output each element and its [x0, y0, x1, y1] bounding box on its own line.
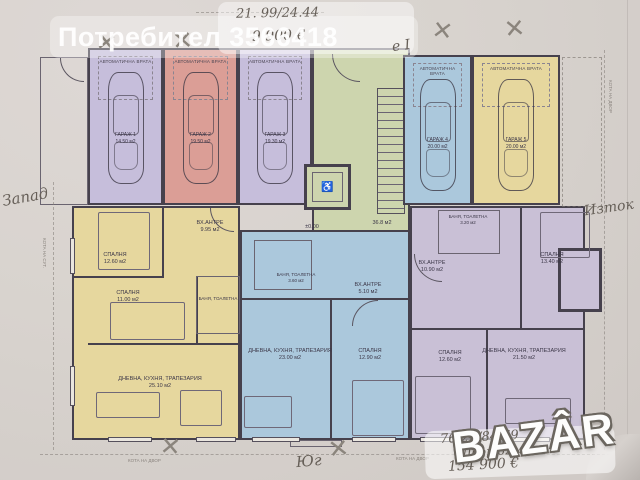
- bed: [352, 380, 404, 436]
- garage-5: АВТОМАТИЧНА ВРАТА ГАРАЖ 520.00 м2: [472, 55, 560, 205]
- wall: [162, 208, 164, 278]
- garage-2: АВТОМАТИЧНА ВРАТА ГАРАЖ 219.50 м2: [163, 48, 238, 205]
- garage-door-label: АВТОМАТИЧНА ВРАТА: [414, 66, 461, 76]
- room-label: СПАЛНЯ12.90 м2: [330, 348, 410, 362]
- room-label: ВХ.АНТРЕ5.10 м2: [328, 282, 408, 296]
- floorplan-photo: АВТОМАТИЧНА ВРАТА ГАРАЖ 114.50 м2 АВТОМА…: [0, 0, 640, 480]
- window: [70, 366, 75, 406]
- garage-door-label: АВТОМАТИЧНА ВРАТА: [483, 66, 549, 71]
- room-label: БАНЯ, ТОАЛЕТНА: [190, 296, 246, 302]
- garage-4: АВТОМАТИЧНА ВРАТА ГАРАЖ 420.00 м2: [403, 55, 472, 205]
- x-mark: ✕: [430, 15, 455, 47]
- room-label: СПАЛНЯ13.40 м2: [512, 252, 592, 266]
- staircase: [377, 88, 405, 214]
- handwritten-entrance-mark: е I: [391, 37, 411, 55]
- room-label: БАНЯ, ТОАЛЕТНА3.60 м2: [256, 272, 336, 283]
- survey-label: КОТА НА ДВОР: [128, 458, 161, 463]
- garage-door-label: АВТОМАТИЧНА ВРАТА: [249, 59, 301, 64]
- handwritten-top-dims: 21. 99/24.44: [236, 5, 319, 21]
- dashed-line-right: [604, 50, 605, 450]
- core-entry-door-arc: [332, 54, 360, 82]
- garage-label: ГАРАЖ 219.50 м2: [165, 132, 236, 145]
- dining-table: [180, 390, 222, 426]
- sofa: [96, 392, 160, 418]
- handwritten-south: Юг: [295, 451, 322, 471]
- garage-door-label: АВТОМАТИЧНА ВРАТА: [174, 59, 227, 64]
- room-label: ДНЕВНА, КУХНЯ, ТРАПЕЗАРИЯ21.50 м2: [464, 348, 584, 362]
- survey-label: КОТА НА ДВОР: [396, 456, 429, 461]
- dining-table: [244, 396, 292, 428]
- car-icon: [108, 72, 144, 184]
- car-icon: [498, 79, 534, 191]
- room-label: СПАЛНЯ11.00 м2: [88, 290, 168, 304]
- garage-door-label: АВТОМАТИЧНА ВРАТА: [99, 59, 152, 64]
- room-label: ВХ.АНТРЕ9.95 м2: [170, 220, 250, 234]
- garage-label: ГАРАЖ 319.30 м2: [240, 132, 310, 145]
- garage-label: ГАРАЖ 114.50 м2: [90, 132, 161, 145]
- handwritten-west: Запад: [1, 184, 50, 210]
- window: [252, 437, 300, 442]
- x-mark: ✕: [159, 431, 182, 462]
- bed: [110, 302, 185, 340]
- car-icon: [420, 79, 456, 191]
- wall: [520, 208, 522, 330]
- user-watermark: Потребител 3566418: [58, 22, 338, 53]
- garage-label: ГАРАЖ 520.00 м2: [474, 137, 558, 150]
- car-icon: [183, 72, 219, 184]
- room-label: БАНЯ, ТОАЛЕТНА3.20 м2: [428, 214, 508, 225]
- bath-yellow: [196, 276, 240, 334]
- garage-1: АВТОМАТИЧНА ВРАТА ГАРАЖ 114.50 м2: [88, 48, 163, 205]
- wall: [330, 298, 332, 440]
- car-icon: [257, 72, 293, 184]
- room-label: СПАЛНЯ12.60 м2: [75, 252, 155, 266]
- core-area-label: 36.8 м2: [360, 220, 404, 227]
- wheelchair-icon: ♿: [321, 182, 333, 193]
- paper-edge: [627, 0, 628, 460]
- window: [196, 437, 236, 442]
- window: [352, 437, 396, 442]
- x-mark: ✕: [503, 13, 527, 44]
- wall: [410, 328, 585, 330]
- room-label: ДНЕВНА, КУХНЯ, ТРАПЕЗАРИЯ25.10 м2: [90, 376, 230, 390]
- core-level-mark: ±0.00: [292, 224, 332, 231]
- x-mark: ✕: [326, 433, 350, 464]
- elevator: ♿: [304, 164, 351, 210]
- survey-label: КОТА НА ДВОР: [608, 80, 613, 113]
- garage-3: АВТОМАТИЧНА ВРАТА ГАРАЖ 319.30 м2: [238, 48, 312, 205]
- garage-label: ГАРАЖ 420.00 м2: [405, 137, 470, 150]
- wall: [240, 298, 410, 300]
- room-label: ВХ.АНТРЕ10.90 м2: [392, 260, 472, 274]
- driveway-dashed: [562, 57, 602, 207]
- wall: [88, 343, 240, 345]
- survey-label: КОТА НА СУТ.: [42, 238, 47, 268]
- window: [108, 437, 152, 442]
- wall: [72, 276, 162, 278]
- dashed-line-left: [53, 182, 54, 450]
